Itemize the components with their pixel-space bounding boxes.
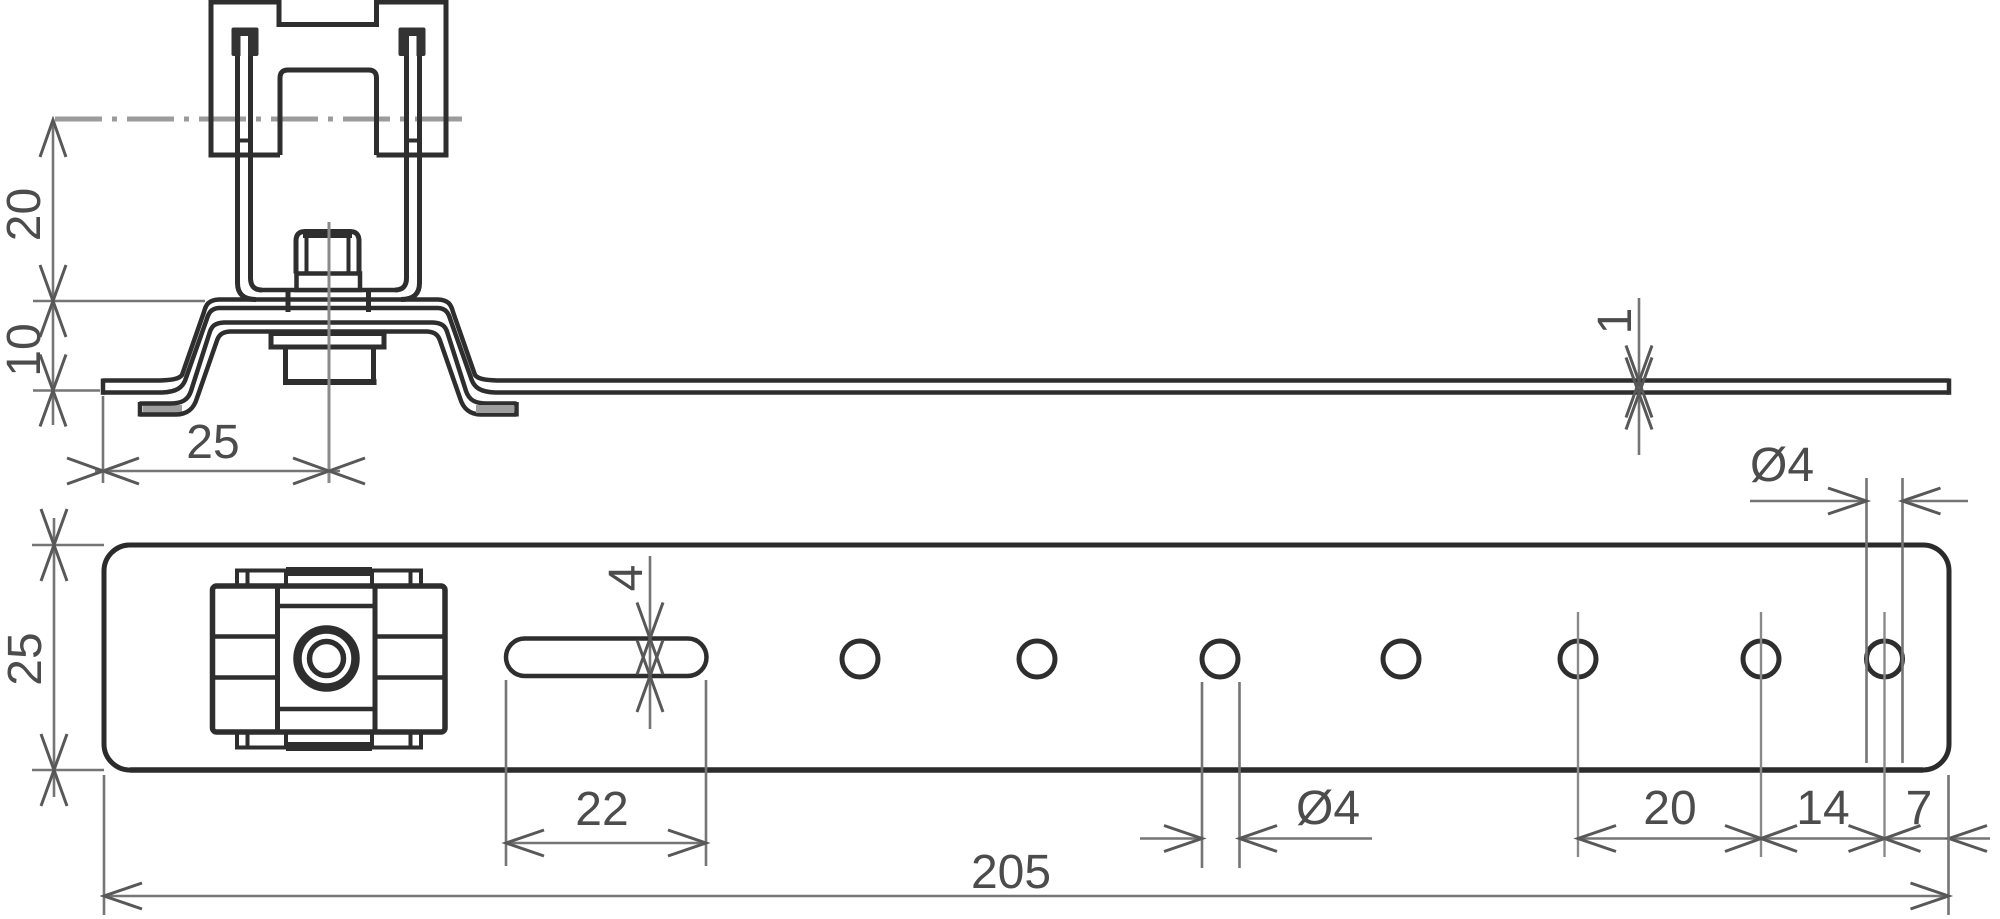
svg-text:4: 4 (600, 565, 653, 592)
svg-text:10: 10 (0, 323, 51, 376)
svg-text:25: 25 (186, 416, 239, 469)
svg-text:1: 1 (1589, 308, 1642, 335)
svg-text:7: 7 (1906, 782, 1933, 835)
svg-text:22: 22 (575, 783, 628, 836)
svg-text:Ø4: Ø4 (1296, 782, 1360, 835)
svg-text:25: 25 (0, 632, 52, 685)
svg-text:20: 20 (0, 188, 51, 241)
svg-text:20: 20 (1643, 782, 1696, 835)
svg-text:14: 14 (1796, 782, 1849, 835)
svg-text:Ø4: Ø4 (1750, 439, 1814, 492)
svg-text:205: 205 (971, 846, 1051, 899)
